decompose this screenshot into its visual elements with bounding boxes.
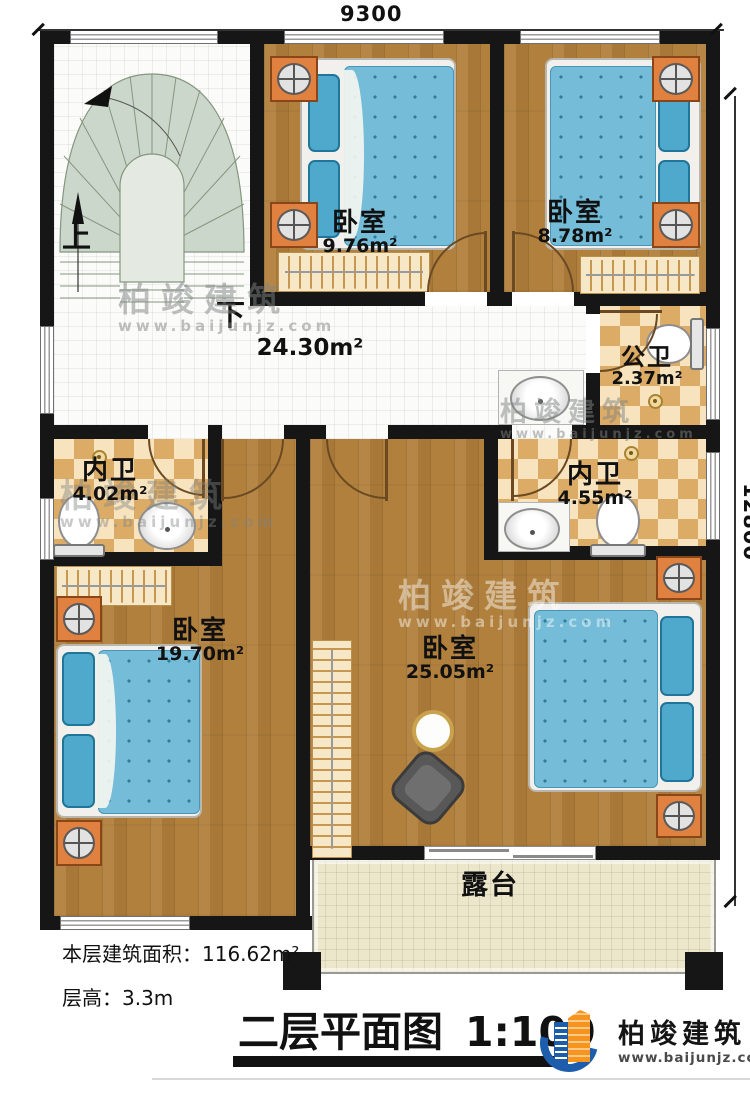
dimension-right: 12800 (739, 483, 750, 561)
nightstand (656, 556, 702, 600)
room-label-public-bath: 公卫 2.37m² (592, 345, 702, 389)
ceiling-lamp (648, 394, 663, 409)
room-name: 内卫 (55, 458, 165, 485)
window (706, 328, 720, 420)
window (706, 452, 720, 540)
room-area: 2.37m² (592, 370, 702, 389)
wall (208, 425, 222, 439)
floor-height-info: 层高：3.3m (62, 982, 173, 1011)
sink (504, 508, 560, 550)
room-name: 卧室 (515, 200, 635, 227)
room-label-ensuite-right: 内卫 4.55m² (540, 462, 650, 509)
window (60, 916, 190, 930)
ceiling-lamp (624, 446, 639, 461)
wall (54, 425, 148, 439)
window (70, 30, 218, 44)
room-name: 内卫 (540, 462, 650, 489)
room-label-terrace: 露台 (430, 872, 550, 900)
room-name: 卧室 (135, 618, 265, 645)
stair-down-label: 下 (216, 292, 245, 334)
tall-wardrobe (312, 640, 352, 858)
wall (388, 425, 512, 439)
floor-plan-canvas: 上 下 (0, 0, 750, 1100)
wall (572, 425, 720, 439)
floor-height-value: 3.3m (122, 986, 173, 1010)
logo-building-blue (554, 1022, 568, 1064)
room-name: 卧室 (385, 636, 515, 663)
floor-area-label: 本层建筑面积： (62, 942, 202, 966)
room-name: 露台 (430, 872, 550, 900)
terrace-column (685, 952, 723, 990)
room-area: 25.05m² (385, 663, 515, 683)
room-name: 公卫 (592, 345, 702, 370)
side-table (412, 710, 454, 752)
room-area: 24.30m² (240, 336, 380, 360)
nightstand (652, 56, 700, 102)
window (40, 326, 54, 414)
room-label-bedroom-bottom-right: 卧室 25.05m² (385, 636, 515, 683)
pillow (660, 616, 694, 696)
wall (706, 30, 720, 860)
wall (250, 292, 425, 306)
window (284, 30, 444, 44)
window (40, 498, 54, 560)
nightstand (56, 596, 102, 642)
wall (586, 306, 600, 314)
room-area: 4.55m² (540, 489, 650, 509)
nightstand (270, 56, 318, 102)
wall (574, 292, 720, 306)
brand-name: 柏竣建筑 (618, 1012, 746, 1051)
title-text: 二层平面图 (238, 998, 443, 1058)
dimension-top: 9300 (340, 2, 402, 26)
room-label-bedroom-top-left: 卧室 9.76m² (300, 210, 420, 257)
logo-building-orange (568, 1010, 590, 1062)
pillow (660, 702, 694, 782)
window (520, 30, 660, 44)
wall (40, 30, 54, 930)
room-name: 卧室 (300, 210, 420, 237)
room-area: 9.76m² (300, 237, 420, 257)
nightstand (656, 794, 702, 838)
wall (484, 439, 498, 546)
sliding-door (424, 846, 596, 860)
pillow (62, 652, 95, 726)
bed-mattress (534, 610, 658, 788)
sink (510, 376, 570, 421)
floor-height-label: 层高： (62, 986, 122, 1010)
toilet-tank (53, 544, 105, 557)
room-area: 4.02m² (55, 485, 165, 505)
dimension-line-top (36, 29, 724, 31)
title-underline (233, 1056, 555, 1067)
pillow (62, 734, 95, 808)
sink (138, 502, 196, 550)
room-area: 19.70m² (135, 645, 265, 665)
wall (284, 425, 326, 439)
wardrobe (278, 252, 430, 292)
floor-area-info: 本层建筑面积：116.62m² (62, 938, 299, 967)
hall-area-label: 24.30m² (240, 336, 380, 360)
wardrobe (580, 256, 700, 294)
nightstand (56, 820, 102, 866)
room-label-bedroom-bottom-left: 卧室 19.70m² (135, 618, 265, 665)
dimension-line-right (734, 96, 736, 906)
nightstand (652, 202, 700, 248)
door-leaf (600, 310, 662, 313)
wall (490, 44, 504, 306)
room-label-bedroom-top-right: 卧室 8.78m² (515, 200, 635, 247)
wall (487, 292, 512, 306)
toilet-tank (590, 544, 646, 557)
floor-area-value: 116.62m² (202, 942, 299, 966)
brand-logo: 柏竣建筑 www.baijunjz.com (540, 998, 750, 1088)
spiral-staircase (54, 44, 250, 314)
room-area: 8.78m² (515, 227, 635, 247)
brand-url: www.baijunjz.com (618, 1050, 750, 1066)
wall (208, 439, 222, 566)
wall (296, 439, 310, 916)
stair-up-label: 上 (62, 214, 91, 256)
room-label-ensuite-left: 内卫 4.02m² (55, 458, 165, 505)
wall (250, 44, 264, 306)
